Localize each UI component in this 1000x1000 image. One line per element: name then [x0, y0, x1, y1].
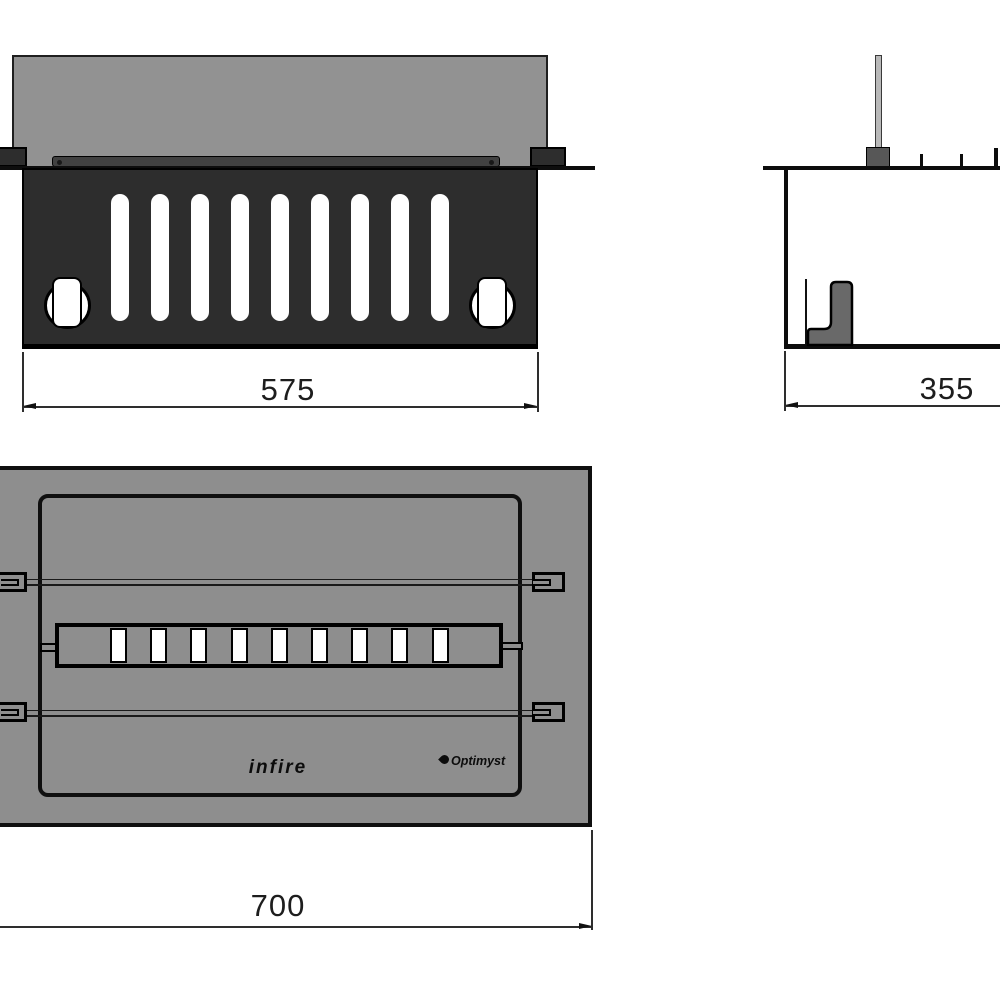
- burner-slot: [150, 628, 167, 663]
- brand-logo: infire: [208, 757, 348, 779]
- top-width-dimension: 700: [228, 888, 328, 924]
- technical-drawing-canvas: 575 355 infir: [0, 0, 1000, 1000]
- technology-logo: Optimyst: [440, 754, 505, 768]
- burner-slot: [110, 628, 127, 663]
- burner-slot: [271, 628, 288, 663]
- top-view-burner-slots: [0, 0, 1000, 1000]
- extension-line: [591, 830, 593, 930]
- dimension-line: [0, 926, 592, 928]
- burner-slot: [190, 628, 207, 663]
- technology-logo-text: Optimyst: [451, 754, 505, 768]
- bar-connector-stub: [40, 643, 57, 652]
- top-view: infire Optimyst 700: [0, 0, 1000, 1000]
- flame-icon: [438, 753, 451, 766]
- burner-slot: [391, 628, 408, 663]
- bar-connector-stub: [501, 642, 523, 650]
- burner-slot: [231, 628, 248, 663]
- burner-slot: [432, 628, 449, 663]
- burner-slot: [351, 628, 368, 663]
- arrow-right-icon: [579, 923, 592, 929]
- burner-slot: [311, 628, 328, 663]
